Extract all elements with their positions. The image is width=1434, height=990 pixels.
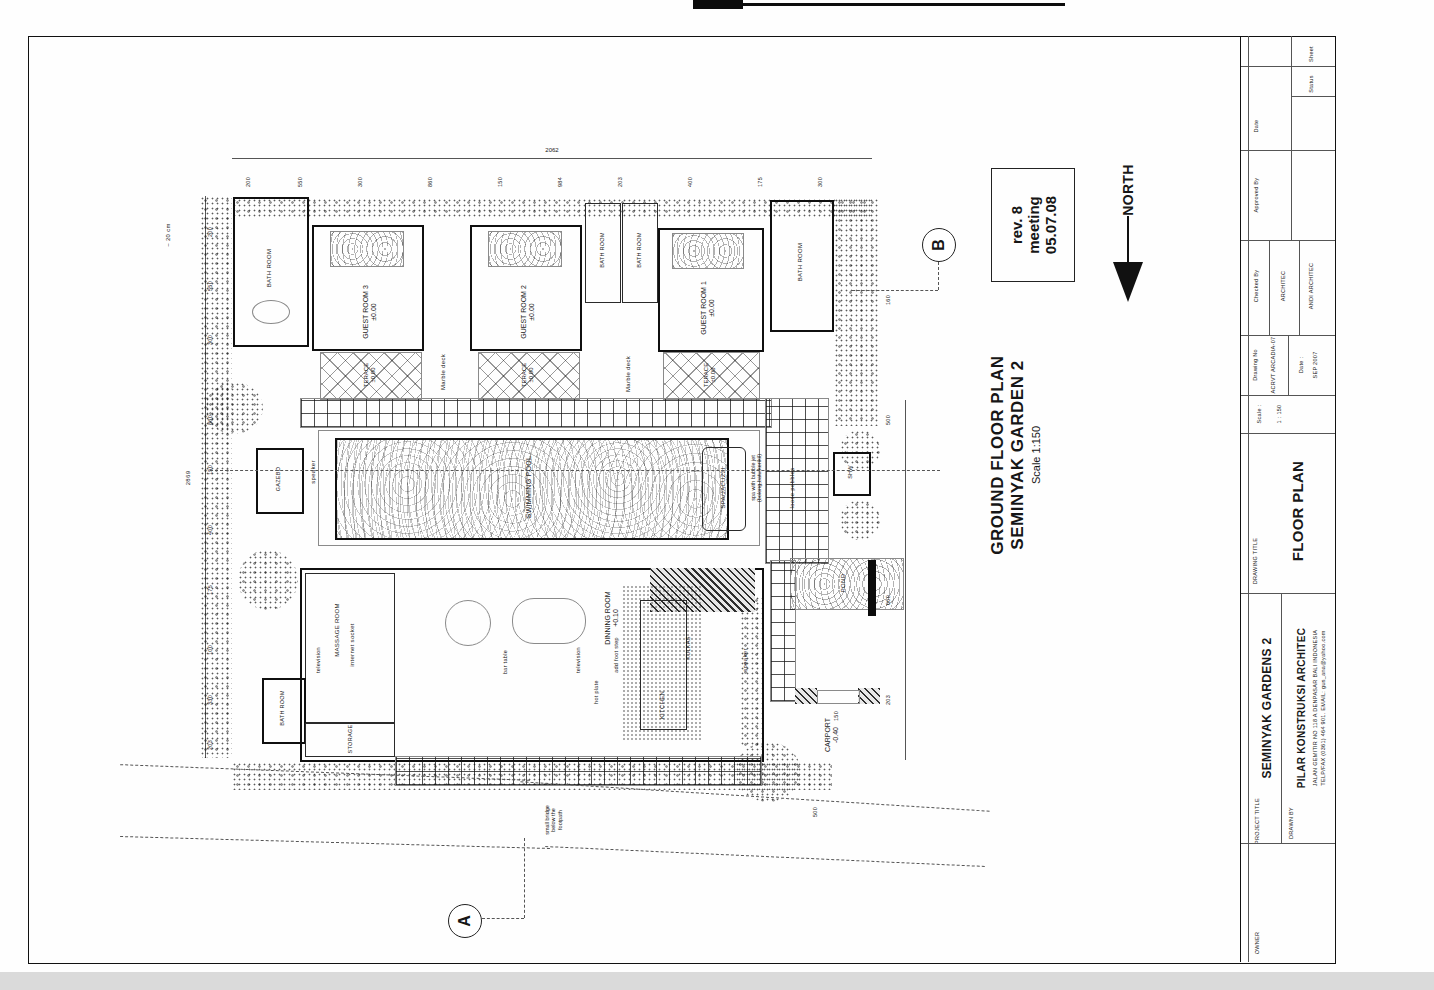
- tb-project-cell: PROJECT TITLE SEMINYAK GARDENS 2 DRAWN B…: [1241, 593, 1335, 843]
- dim: 500: [885, 415, 891, 425]
- dim: 300: [357, 177, 363, 187]
- loose-pebbles-label: loose pebbles: [789, 468, 795, 509]
- room-label: BATH ROOM: [797, 243, 803, 282]
- tb-approval-rows: Approved By: [1241, 150, 1335, 240]
- room-label: STORAGE: [347, 725, 353, 754]
- tb-value-addr1: JALAN GEMITIR NO 118 A DENPASAR BALI IND…: [1312, 630, 1318, 787]
- pool-label: SWIMMING POOL: [525, 456, 532, 519]
- tb-divider: [1281, 593, 1282, 843]
- stepping-path: [770, 560, 796, 702]
- gate: [817, 690, 860, 704]
- section-marker-a: A: [448, 904, 482, 938]
- section-line: [524, 838, 525, 918]
- revision-box: rev. 8 meeting 05.07.08: [991, 168, 1075, 282]
- dim-left-total: 2869: [185, 471, 191, 486]
- dim: 550: [297, 177, 303, 187]
- room-label: MASSAGE ROOM: [334, 603, 340, 657]
- spa-label: SPA/JACUZZI: [720, 467, 726, 508]
- room-label: GUEST ROOM 3 ±0.00: [362, 285, 378, 339]
- dim: 150: [497, 177, 503, 187]
- spa-note-2: (bolong,batu,kerikil): [756, 454, 762, 502]
- internet-socket-label: internet socket: [349, 623, 355, 667]
- garden-strip-right: [834, 198, 878, 426]
- terrace-name: TERACE: [521, 363, 528, 387]
- terrace-label: TERACE ±0.00: [521, 363, 535, 387]
- section-marker-b: B: [922, 228, 956, 262]
- tb-value-date: SEP 2007: [1312, 351, 1318, 378]
- tb-revision-rows: Date Sheet Status: [1241, 36, 1335, 150]
- tb-value-firm: PILAR KONSTRUKSI ARCHITEC: [1296, 628, 1307, 788]
- marble-deck-label: Marble deck: [440, 354, 446, 390]
- north-arrow: NORTH: [1090, 150, 1170, 320]
- north-triangle-icon: [1113, 262, 1143, 302]
- tb-label-date2: Date :: [1298, 357, 1304, 373]
- tb-line: [1291, 96, 1335, 97]
- note-20cm: ~ 20 cm: [165, 223, 171, 247]
- revision-line3: 05.07.08: [1042, 196, 1059, 254]
- dim: 203: [885, 695, 891, 705]
- title-block: Date Sheet Status Approved By Checked By…: [1240, 36, 1335, 962]
- dining-table: [512, 598, 586, 644]
- section-letter: B: [930, 239, 948, 251]
- tb-divider: [1299, 240, 1300, 335]
- terrace-name: TERACE: [363, 363, 370, 387]
- plan-title-scale: Scale 1:150: [1030, 355, 1042, 554]
- terrace-label: TERACE ±0.00: [703, 363, 717, 387]
- tb-value-architec: ARCHITEC: [1280, 271, 1286, 302]
- tb-owner-cell: OWNER: [1241, 843, 1335, 962]
- dim: 175: [757, 177, 763, 187]
- terrace-name: TERACE: [703, 363, 710, 387]
- room-name: GUEST ROOM 2: [520, 285, 528, 339]
- bridge-note: small bridge below the footpath: [544, 805, 563, 835]
- tb-number-rows: Drawing No ACRVT ARCADIA-07 Date : SEP 2…: [1241, 335, 1335, 395]
- tb-label-approved: Approved By: [1253, 178, 1259, 213]
- tb-drawing-title-cell: DRAWING TITLE FLOOR PLAN: [1241, 433, 1335, 593]
- room-name: DINNING ROOM: [604, 591, 612, 644]
- tb-value-code: ACRVT ARCADIA-07: [1270, 337, 1276, 394]
- room-name: GUEST ROOM 1: [700, 281, 708, 335]
- terrace-label: TERACE ±0.00: [363, 363, 377, 387]
- carport-level: -0.40: [832, 718, 840, 752]
- tb-value-drawing: FLOOR PLAN: [1289, 461, 1306, 562]
- tb-label-checked: Checked By: [1253, 270, 1259, 303]
- tb-divider: [1269, 240, 1270, 335]
- kulkas-label: KULKAS: [685, 636, 691, 660]
- terrace-level: ±0.00: [528, 363, 535, 387]
- tb-value-project: SEMINYAK GARDENS 2: [1260, 638, 1274, 779]
- plan-title-block: GROUND FLOOR PLAN SEMINYAK GARDEN 2 Scal…: [950, 330, 1080, 580]
- round-table: [445, 600, 491, 646]
- plan-title-line2: SEMINYAK GARDEN 2: [1008, 355, 1028, 554]
- speaker-label: speaker: [742, 648, 748, 671]
- room-level: ±0.00: [708, 281, 716, 335]
- dim: 200: [245, 177, 251, 187]
- section-line: [482, 918, 524, 919]
- shrub: [840, 500, 880, 540]
- television-label: television: [315, 647, 321, 673]
- room-name: GUEST ROOM 3: [362, 285, 370, 339]
- room-label: BATH ROOM: [279, 690, 285, 726]
- site-line-right: [905, 400, 906, 760]
- tb-scale-row: Scale : 1 : 150: [1241, 395, 1335, 433]
- bed: [488, 231, 562, 267]
- dim: 400: [687, 177, 693, 187]
- tb-label-date: Date: [1253, 120, 1259, 133]
- television-label: television: [575, 647, 581, 673]
- tb-label-project-title: PROJECT TITLE: [1254, 798, 1260, 844]
- marble-deck-label: Marble deck: [625, 356, 631, 392]
- bed: [330, 231, 404, 267]
- paver-walkway-right: [765, 398, 829, 564]
- section-line: [852, 290, 938, 291]
- spa-note: spa with bubble jet (bolong,batu,kerikil…: [750, 454, 763, 502]
- pond: [790, 558, 904, 610]
- room-label: BATH ROOM: [636, 232, 642, 268]
- swimming-pool: [335, 438, 729, 540]
- footpath-line: [545, 846, 985, 867]
- kitchen-label: KITCHEN: [659, 691, 665, 719]
- revision-line2: meeting: [1025, 196, 1042, 254]
- tb-label-sheet: Sheet: [1308, 46, 1314, 62]
- wall-segment: [868, 560, 876, 616]
- tb-architect-rows: Checked By ARCHITEC ANDI ARCHITEC: [1241, 240, 1335, 335]
- garden-strip-left: [200, 196, 232, 758]
- speaker-label: speaker: [310, 460, 316, 483]
- foot-step-label: add foot step: [613, 637, 619, 673]
- section-line: [938, 262, 939, 290]
- tb-label-drawing-no: Drawing No: [1252, 349, 1258, 381]
- tb-label-scale: Scale :: [1256, 405, 1262, 424]
- gate-pillar: [795, 688, 817, 704]
- carport-name: CARPORT: [824, 718, 832, 752]
- dim: 300: [817, 177, 823, 187]
- terrace-level: ±0.00: [370, 363, 377, 387]
- tb-value-addr2: TELP/FAX (0361) 464 901. EMAIL: gus_ana@…: [1320, 630, 1326, 785]
- carport-label: CARPORT -0.40: [824, 718, 840, 752]
- room-label: BATH ROOM: [266, 249, 272, 288]
- tb-line: [1241, 66, 1335, 67]
- room-label: GUEST ROOM 2 ±0.00: [520, 285, 536, 339]
- plan-title-line1: GROUND FLOOR PLAN: [988, 355, 1008, 554]
- north-label: NORTH: [1120, 164, 1136, 215]
- gate-pillar: [858, 688, 880, 704]
- section-letter: A: [456, 915, 474, 927]
- bridge-note-2: below the: [550, 805, 556, 835]
- dim: 160: [885, 295, 891, 305]
- tb-label-drawn-by: DRAWN BY: [1288, 807, 1294, 839]
- tb-label-owner: OWNER: [1254, 932, 1260, 955]
- bar-table-label: bar table: [502, 650, 508, 674]
- tb-label-drawing-title: DRAWING TITLE: [1252, 538, 1258, 585]
- room-label: BATH ROOM: [599, 232, 605, 268]
- dim-top-total: 2062: [545, 147, 558, 153]
- bathtub: [252, 300, 290, 324]
- dim: 203: [617, 177, 623, 187]
- tb-divider: [1288, 335, 1289, 395]
- tb-value-architec2: ANDI ARCHITEC: [1308, 263, 1314, 309]
- dimension-line-top: [232, 158, 872, 159]
- room-level: ±0.00: [528, 285, 536, 339]
- terrace-level: ±0.00: [710, 363, 717, 387]
- room-level: ±0.00: [370, 285, 378, 339]
- tree: [205, 382, 263, 434]
- dim: 860: [427, 177, 433, 187]
- dim: 500: [812, 807, 818, 817]
- drawing-sheet: 2062 2869 200 550 300 860 150 984 203 40…: [0, 0, 1434, 990]
- bed: [672, 233, 744, 269]
- hot-plate-label: hot plate: [593, 680, 599, 704]
- tb-value-scale: 1 : 150: [1276, 405, 1282, 424]
- dim: 984: [557, 177, 563, 187]
- tb-label-status: Status: [1308, 75, 1314, 92]
- centerline: [210, 470, 940, 471]
- paver-walkway-bottom: [395, 756, 762, 786]
- room-label: GUEST ROOM 1 ±0.00: [700, 281, 716, 335]
- flower-tree: [238, 550, 298, 610]
- bridge-note-3: footpath: [556, 805, 562, 835]
- shower-label: SHW: [847, 465, 853, 479]
- revision-line1: rev. 8: [1008, 196, 1025, 254]
- pond-label: POND: [840, 574, 846, 593]
- footpath-line: [120, 836, 550, 849]
- paver-walkway-top: [300, 398, 772, 428]
